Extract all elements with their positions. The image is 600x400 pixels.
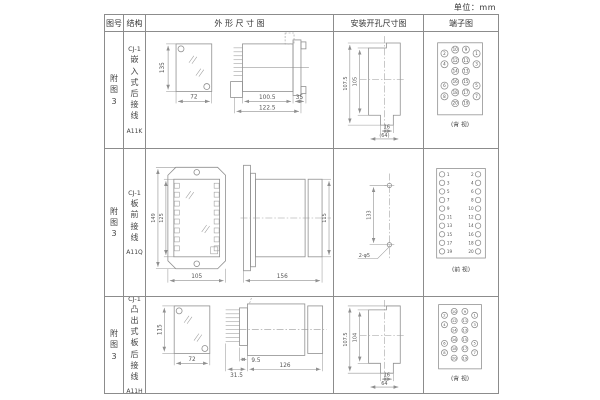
- structure-series-row1: CJ-1: [128, 45, 141, 53]
- terminal-strip-right: [214, 183, 219, 251]
- svg-text:7: 7: [446, 198, 449, 203]
- svg-text:4: 4: [443, 62, 446, 67]
- side-view: 100.5 35 122.5: [231, 33, 309, 113]
- install-drawing-row2: 133 2-φ5: [334, 149, 423, 296]
- structure-series-row3: CJ-1: [128, 297, 141, 303]
- structure-model-row2: A11Q: [126, 249, 142, 256]
- svg-text:2: 2: [443, 51, 446, 56]
- svg-text:8: 8: [443, 351, 446, 355]
- svg-text:2: 2: [443, 313, 445, 317]
- side-view: 115 156: [240, 165, 331, 282]
- svg-text:20: 20: [452, 101, 458, 106]
- front-view: 149 125 105: [151, 167, 226, 282]
- svg-text:5: 5: [475, 83, 478, 88]
- dim-front-height: 149: [151, 213, 157, 222]
- svg-text:15: 15: [462, 337, 467, 341]
- terminal-diagram-row3: (背 视) 2109141211314136161558181772019: [425, 298, 498, 393]
- svg-text:16: 16: [451, 337, 456, 341]
- outline-drawing-row1: 135 72: [146, 32, 333, 148]
- dim-front-width: 105: [191, 274, 202, 280]
- dim-front-width: 72: [188, 356, 196, 362]
- svg-text:14: 14: [451, 328, 456, 332]
- dim-install-slot: 16: [384, 125, 390, 131]
- front-view: 135 72: [160, 44, 212, 103]
- svg-text:16: 16: [452, 79, 458, 84]
- terminal-cell-row1: (背 视) 2109141211314136161558181772019: [424, 32, 498, 149]
- svg-text:7: 7: [475, 94, 478, 99]
- svg-text:1: 1: [473, 313, 475, 317]
- svg-text:10: 10: [451, 309, 456, 313]
- svg-text:4: 4: [471, 180, 474, 185]
- svg-text:9: 9: [464, 47, 467, 52]
- terminal-diagram-row1: (背 视) 2109141211314136161558181772019: [425, 32, 498, 148]
- svg-text:20: 20: [451, 356, 456, 360]
- dim-install-total: 64: [381, 381, 387, 387]
- svg-text:8: 8: [443, 94, 446, 99]
- svg-text:11: 11: [446, 215, 452, 220]
- dim-side-2: 122.5: [259, 105, 276, 111]
- dim-side-1: 100.5: [259, 95, 276, 101]
- dim-install-v: 133: [367, 210, 373, 219]
- terminal-caption-row1: (背 视): [451, 121, 469, 129]
- svg-text:12: 12: [452, 58, 458, 63]
- dim-front-width: 72: [190, 94, 198, 100]
- svg-text:3: 3: [475, 62, 478, 67]
- svg-text:17: 17: [446, 240, 452, 245]
- terminal-caption-row2: (前 视): [451, 266, 469, 274]
- dim-front-height: 135: [160, 62, 166, 73]
- svg-text:13: 13: [446, 223, 452, 228]
- dim-body-length: 126: [280, 362, 291, 368]
- header-fig-no: 图号: [105, 15, 124, 32]
- dimension-table: 图号 结构 外 形 尺 寸 图 安装开孔尺寸图 端子图 附图3 CJ-1 嵌入式…: [104, 14, 499, 394]
- svg-text:9: 9: [446, 206, 449, 211]
- structure-mounting-row2: 板前接线: [131, 198, 139, 243]
- svg-text:6: 6: [471, 189, 474, 194]
- dim-pin-depth: 31.5: [230, 373, 243, 379]
- svg-text:2: 2: [471, 172, 474, 177]
- svg-text:14: 14: [452, 68, 458, 73]
- dim-install-total: (64): [379, 133, 389, 139]
- hole-spec-label: 2-φ5: [359, 253, 370, 259]
- structure-row3: CJ-1 凸出式板后接线 A11H: [124, 297, 146, 393]
- terminal-strip-left: [174, 183, 179, 251]
- svg-text:1: 1: [475, 51, 478, 56]
- dim-pin-block: 9.5: [251, 357, 260, 363]
- svg-text:17: 17: [462, 347, 467, 351]
- svg-text:3: 3: [473, 323, 476, 327]
- svg-text:12: 12: [468, 215, 474, 220]
- dim-front-height: 115: [157, 323, 163, 334]
- dim-side-3: 35: [296, 95, 304, 101]
- unit-label: 单位：mm: [454, 2, 496, 13]
- svg-text:8: 8: [471, 198, 474, 203]
- outline-cell-row3: 115 72: [146, 297, 334, 393]
- outline-drawing-row3: 115 72: [146, 298, 333, 393]
- svg-text:15: 15: [446, 232, 452, 237]
- install-drawing-row3: 107.5 104 16 64: [334, 298, 423, 393]
- outline-drawing-row2: 149 125 105: [146, 149, 333, 296]
- svg-text:9: 9: [463, 309, 466, 313]
- terminal-cell-row3: (背 视) 2109141211314136161558181772019: [424, 297, 498, 393]
- install-drawing-row1: 107.5 105 16 (64): [334, 32, 423, 148]
- svg-text:20: 20: [468, 249, 474, 254]
- svg-text:18: 18: [452, 90, 458, 95]
- svg-text:18: 18: [468, 240, 474, 245]
- svg-text:13: 13: [463, 68, 469, 73]
- dim-install-slot: 16: [384, 372, 390, 378]
- dim-install-outer: 107.5: [343, 77, 349, 91]
- svg-text:16: 16: [468, 232, 474, 237]
- svg-text:5: 5: [473, 341, 476, 345]
- outline-cell-row2: 149 125 105: [146, 149, 334, 297]
- header-structure: 结构: [124, 15, 146, 32]
- svg-text:10: 10: [468, 206, 474, 211]
- svg-text:13: 13: [462, 328, 467, 332]
- install-cell-row3: 107.5 104 16 64: [334, 297, 424, 393]
- structure-row1: CJ-1 嵌入式后接线 A11K: [124, 32, 146, 149]
- dim-install-inner: 104: [353, 332, 359, 341]
- svg-text:18: 18: [451, 347, 456, 351]
- terminal-diagram-row2: (前 视) 1357911131517192468101214161820: [425, 149, 498, 296]
- svg-text:19: 19: [462, 356, 467, 360]
- dim-front-height2: 125: [159, 213, 165, 222]
- structure-series-row2: CJ-1: [128, 189, 141, 197]
- dim-install-outer: 107.5: [343, 332, 349, 346]
- header-install: 安装开孔尺寸图: [334, 15, 424, 32]
- svg-text:15: 15: [463, 79, 469, 84]
- svg-text:19: 19: [446, 249, 452, 254]
- shear-marks: [186, 191, 210, 233]
- structure-mounting-row3: 凸出式板后接线: [131, 304, 139, 382]
- side-view: 9.5 31.5 126: [226, 298, 327, 379]
- install-cell-row2: 133 2-φ5: [334, 149, 424, 297]
- structure-model-row3: A11H: [126, 388, 142, 393]
- terminal-cell-row2: (前 视) 1357911131517192468101214161820: [424, 149, 498, 297]
- front-view: 115 72: [157, 305, 209, 364]
- fig-no-row2: 附图3: [105, 149, 124, 297]
- structure-row2: CJ-1 板前接线 A11Q: [124, 149, 146, 297]
- fig-no-row1: 附图3: [105, 32, 124, 149]
- terminal-pins: [226, 309, 240, 341]
- terminal-pins: [234, 48, 243, 76]
- svg-text:14: 14: [468, 223, 474, 228]
- svg-text:12: 12: [451, 319, 456, 323]
- svg-text:4: 4: [443, 323, 446, 327]
- svg-text:10: 10: [452, 47, 458, 52]
- header-outline: 外 形 尺 寸 图: [146, 15, 334, 32]
- shear-marks: [184, 315, 202, 341]
- svg-text:11: 11: [463, 58, 469, 63]
- outline-cell-row1: 135 72: [146, 32, 334, 149]
- svg-text:17: 17: [463, 90, 469, 95]
- install-cell-row1: 107.5 105 16 (64): [334, 32, 424, 149]
- fig-no-row3: 附图3: [105, 297, 124, 393]
- structure-mounting-row1: 嵌入式后接线: [131, 54, 139, 121]
- svg-text:11: 11: [462, 319, 467, 323]
- svg-text:6: 6: [443, 83, 446, 88]
- shear-marks: [189, 56, 204, 77]
- svg-text:1: 1: [446, 172, 449, 177]
- datasheet-page: 单位：mm 图号 结构 外 形 尺 寸 图 安装开孔尺寸图 端子图 附图3 CJ…: [0, 0, 600, 400]
- svg-text:6: 6: [443, 341, 446, 345]
- header-terminal: 端子图: [424, 15, 498, 32]
- svg-text:7: 7: [473, 351, 476, 355]
- svg-text:3: 3: [446, 180, 449, 185]
- terminal-caption-row3: (背 视): [451, 374, 469, 382]
- svg-text:5: 5: [446, 189, 449, 194]
- structure-model-row1: A11K: [127, 128, 143, 135]
- dim-side-height: 115: [322, 213, 328, 222]
- svg-text:19: 19: [463, 101, 469, 106]
- dim-side-length: 156: [277, 274, 288, 280]
- dim-install-inner: 105: [353, 77, 359, 86]
